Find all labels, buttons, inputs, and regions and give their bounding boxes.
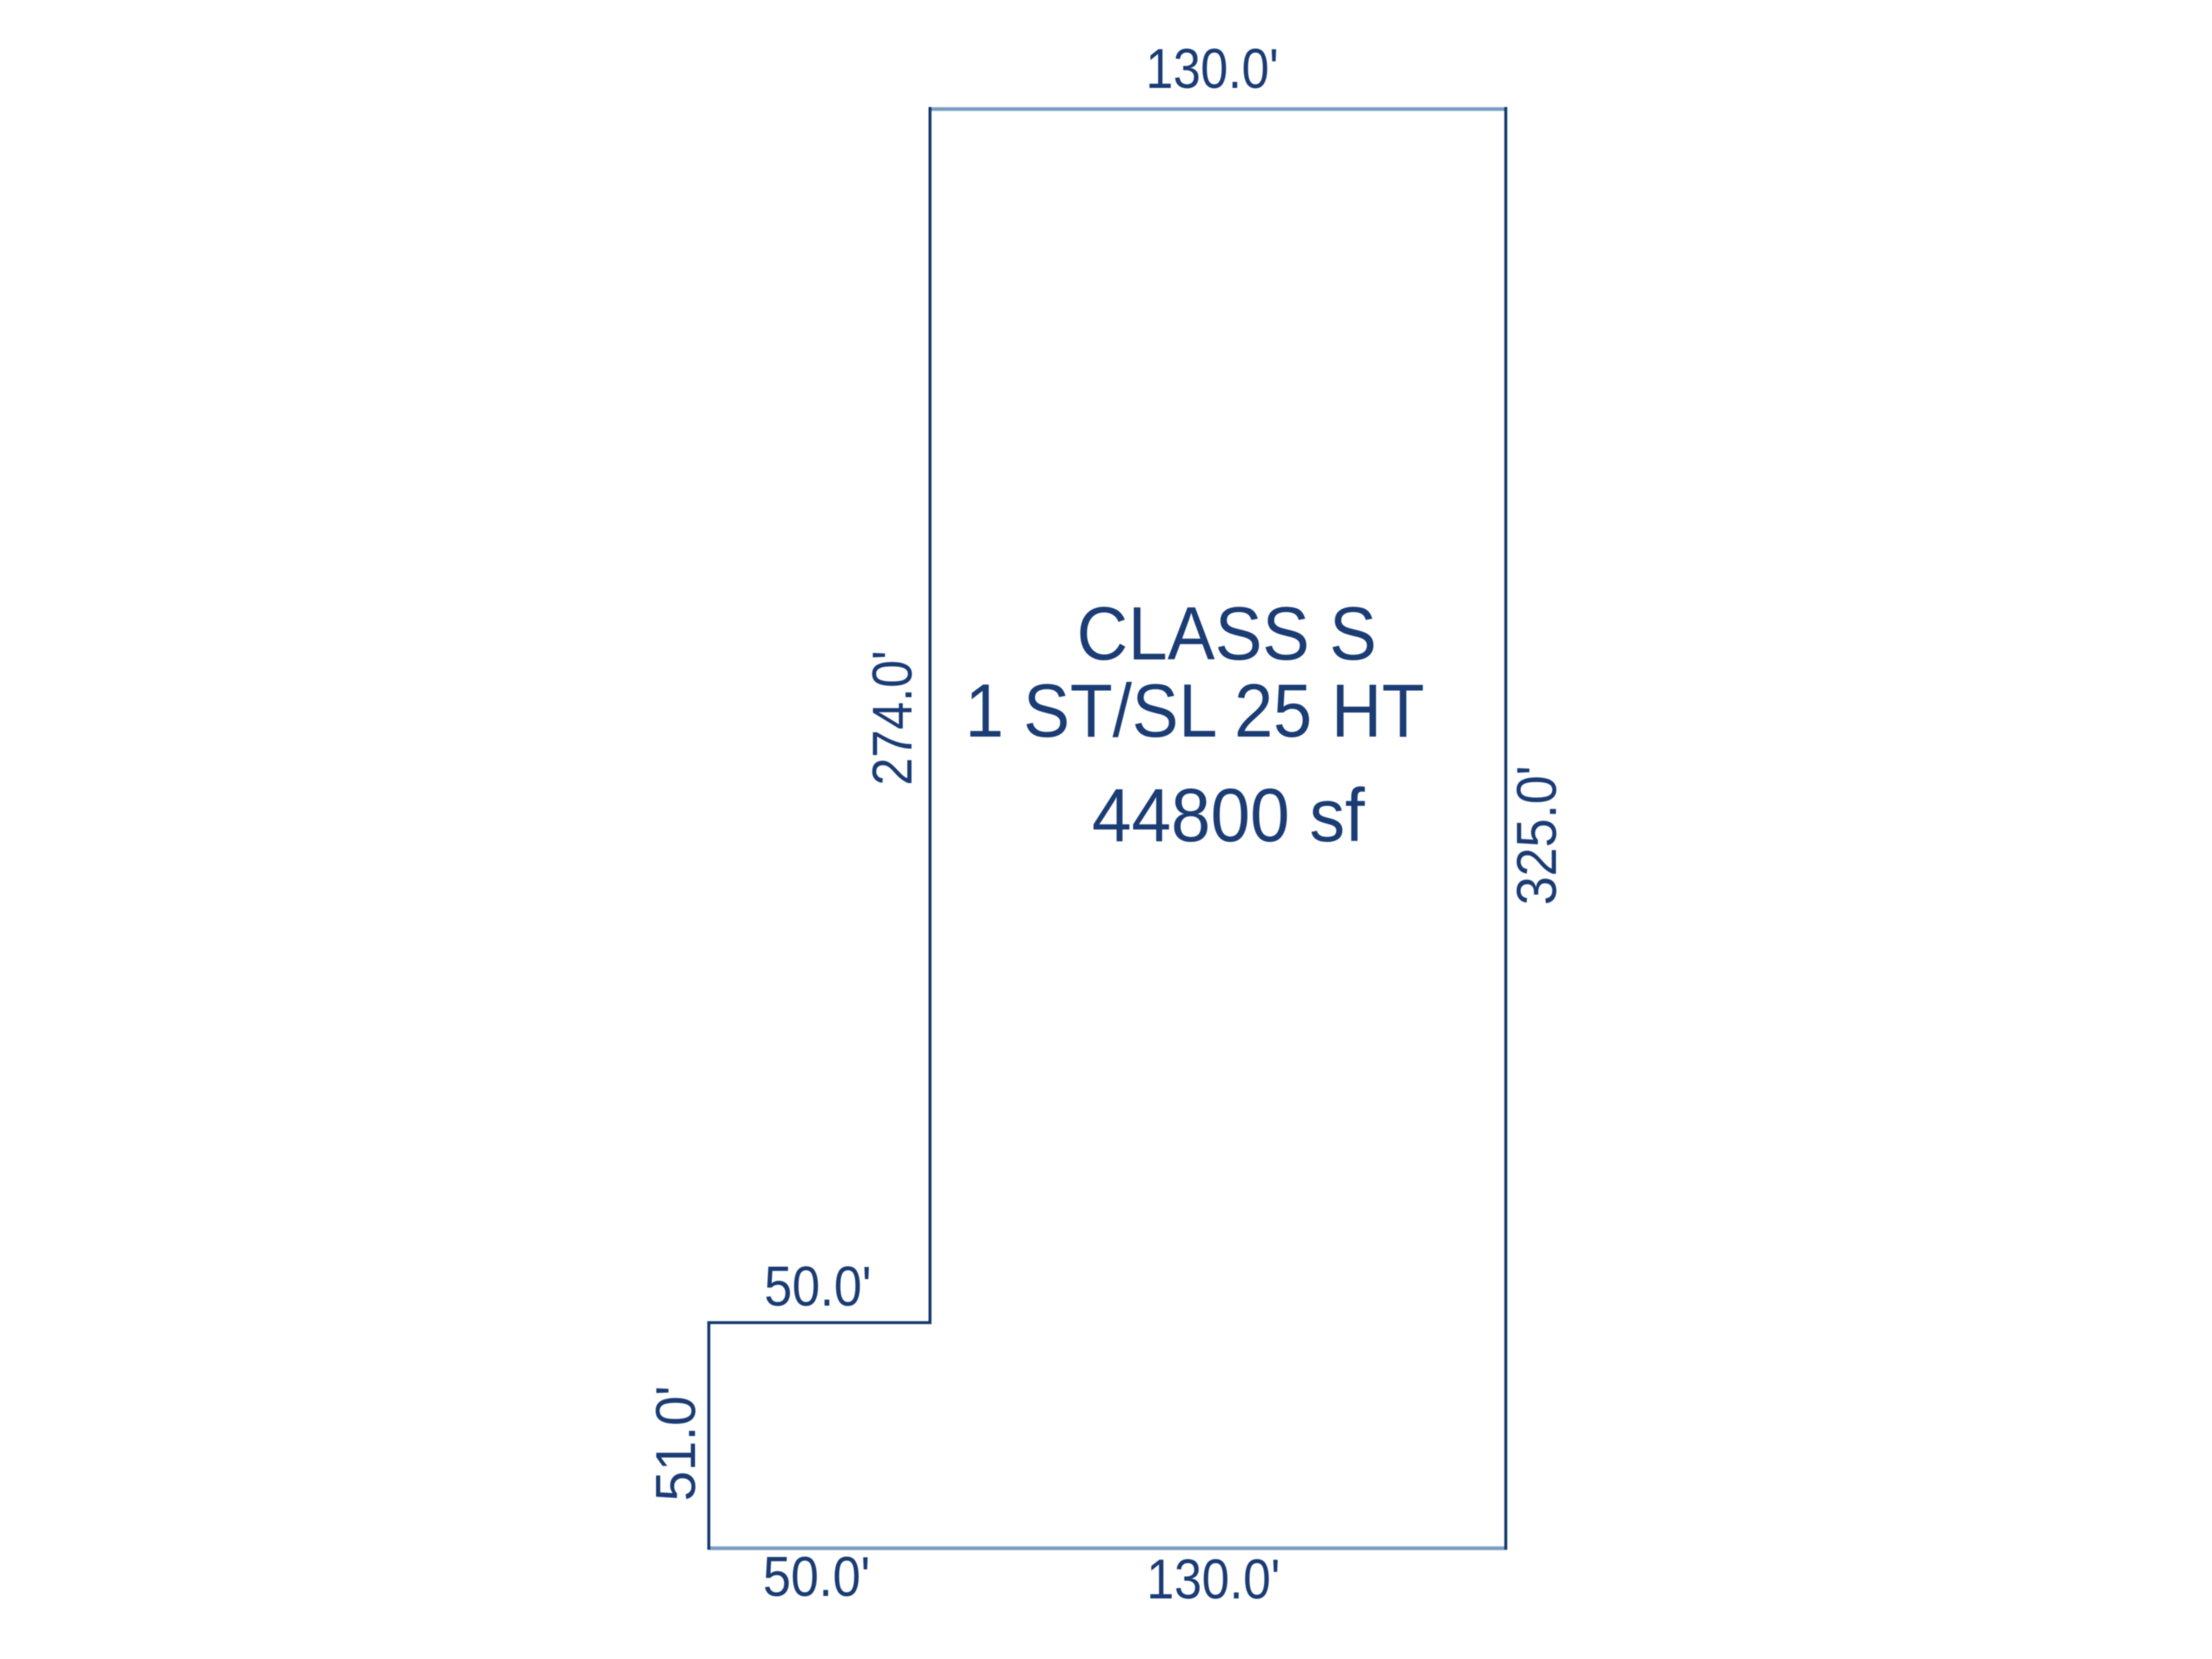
svg-text:CLASS S: CLASS S [1077,591,1377,676]
svg-text:274.0': 274.0' [861,650,924,786]
svg-text:44800 sf: 44800 sf [1092,773,1365,858]
svg-text:130.0': 130.0' [1146,1547,1280,1610]
svg-text:51.0': 51.0' [645,1385,707,1501]
svg-text:130.0': 130.0' [1145,36,1278,100]
svg-text:1 ST/SL 25 HT: 1 ST/SL 25 HT [965,669,1425,753]
svg-text:50.0': 50.0' [764,1255,871,1318]
svg-text:325.0': 325.0' [1505,766,1568,905]
svg-text:50.0': 50.0' [763,1545,870,1608]
